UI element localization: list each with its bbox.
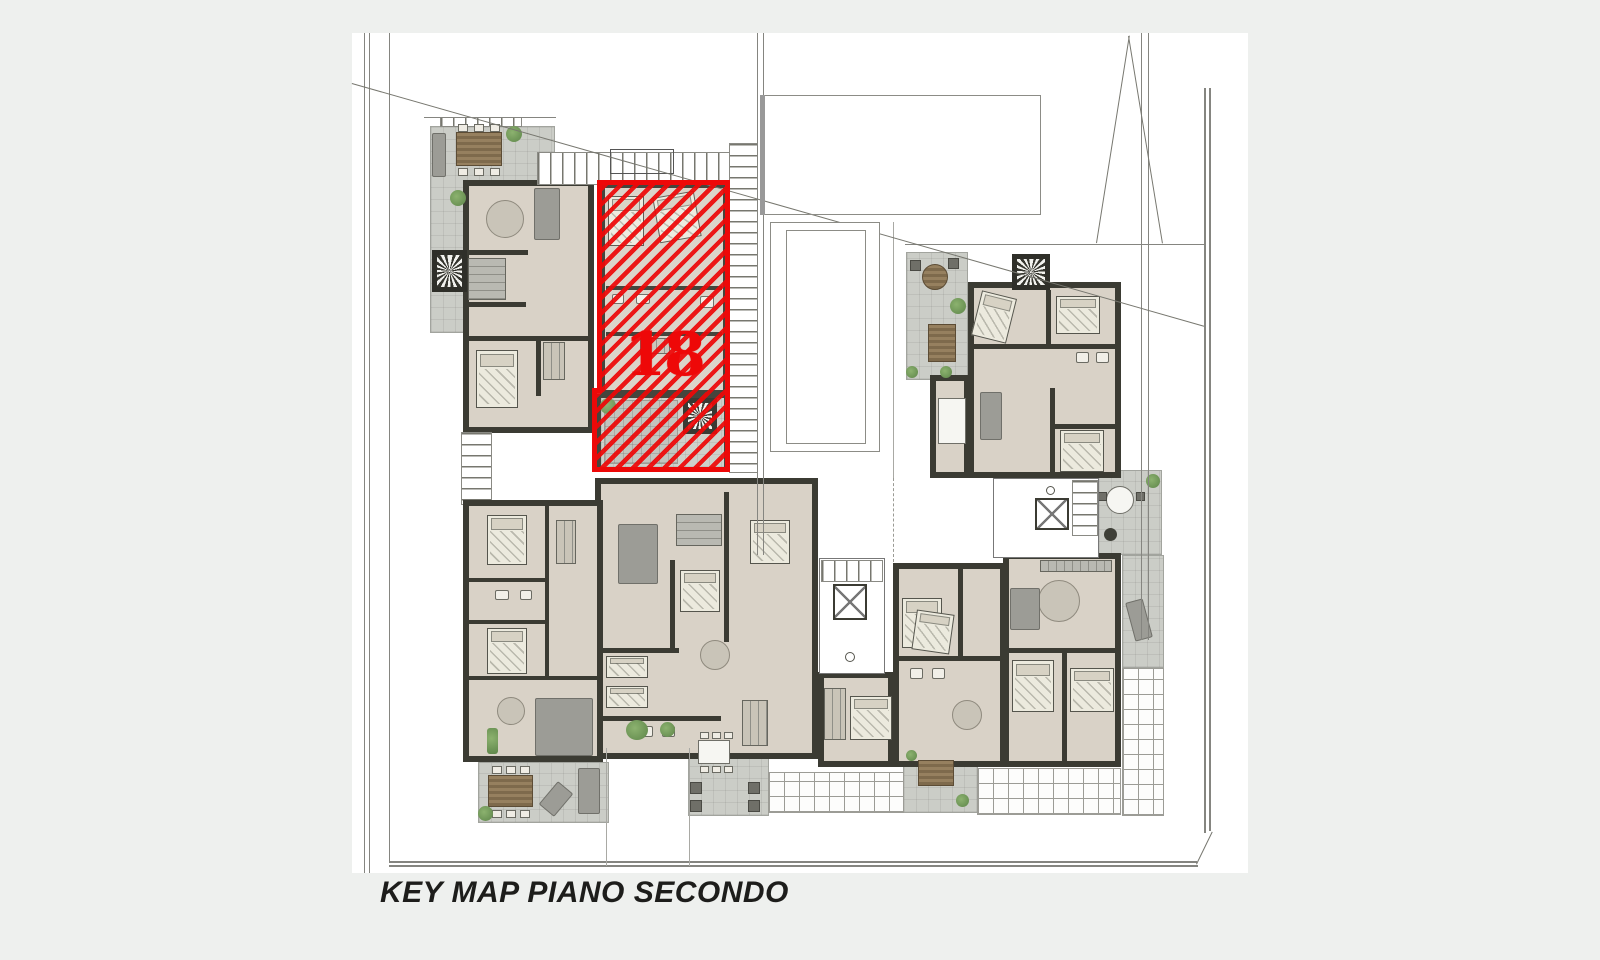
unit-18-highlight — [592, 392, 730, 472]
site-boundary-line — [1204, 88, 1206, 833]
dining-table — [918, 760, 954, 786]
gallery-landing — [610, 149, 674, 174]
chair — [910, 260, 921, 271]
plant — [956, 794, 969, 807]
interior-wall — [724, 492, 729, 642]
sofa — [980, 392, 1002, 440]
bed — [487, 628, 527, 674]
bath-fixture — [932, 668, 945, 679]
dining-table — [698, 740, 730, 764]
bath-fixture — [1096, 352, 1109, 363]
key-map-caption: KEY MAP PIANO SECONDO — [380, 876, 789, 910]
entrance-path-line — [689, 748, 690, 866]
sofa — [534, 188, 560, 240]
key-map-canvas: 18 KEY MAP PIANO SECONDO — [0, 0, 1600, 960]
interior-wall — [467, 620, 547, 624]
armchair — [748, 782, 760, 794]
interior-wall — [468, 336, 588, 341]
setback-dashed-line — [893, 478, 894, 562]
survey-marker — [845, 652, 855, 662]
bed — [476, 350, 518, 408]
closet — [543, 342, 565, 380]
spiral-stair — [432, 250, 467, 292]
site-boundary-line — [1209, 88, 1211, 831]
chair — [712, 766, 721, 773]
dining-table — [456, 132, 502, 166]
chair — [474, 168, 484, 176]
interior-wall — [899, 656, 1003, 661]
entrance-path-line — [606, 748, 607, 866]
plant — [660, 722, 675, 737]
elevator — [833, 584, 867, 620]
elevator — [1035, 498, 1069, 530]
rug — [700, 640, 730, 670]
site-line — [905, 244, 1206, 245]
site-line — [424, 117, 556, 118]
plant — [450, 190, 466, 206]
plant — [906, 366, 918, 378]
dining-table — [488, 775, 533, 807]
round-table — [922, 264, 948, 290]
site-line — [893, 222, 894, 480]
stair-ladder — [1072, 480, 1098, 536]
chair — [724, 766, 733, 773]
plant — [950, 298, 966, 314]
chair — [700, 732, 709, 739]
tile-paving — [977, 768, 1121, 815]
kitchen-island — [676, 514, 722, 546]
survey-marker — [1046, 486, 1055, 495]
chair — [490, 168, 500, 176]
tile-paving — [1122, 668, 1164, 816]
bed — [750, 520, 790, 564]
closet — [556, 520, 576, 564]
chair — [506, 810, 516, 818]
plant — [626, 720, 648, 740]
plant — [478, 806, 493, 821]
interior-wall — [545, 505, 549, 677]
round-table — [1106, 486, 1134, 514]
sofa — [1010, 588, 1040, 630]
bath-fixture — [495, 590, 509, 600]
kitchen-unit — [1040, 560, 1112, 572]
single-bed — [606, 656, 648, 678]
bed — [1012, 660, 1054, 712]
chair — [520, 766, 530, 774]
site-line — [1148, 33, 1149, 640]
bed — [1056, 296, 1100, 334]
site-boundary-line — [369, 33, 370, 873]
chair — [1098, 492, 1107, 501]
site-boundary-line — [389, 865, 1198, 867]
bed — [850, 696, 892, 740]
plant — [487, 728, 498, 754]
sofa — [432, 133, 446, 177]
interior-wall — [468, 250, 528, 255]
site-line — [757, 33, 758, 555]
site-boundary-line — [364, 33, 365, 873]
bath-fixture — [520, 590, 532, 600]
interior-wall — [601, 648, 679, 653]
building-bottom-right-west — [893, 563, 1006, 767]
planter — [1104, 528, 1117, 541]
plant — [906, 750, 917, 761]
lightwell-inner — [786, 230, 866, 444]
bed — [680, 570, 720, 612]
stair-ladder — [821, 560, 883, 582]
sofa — [618, 524, 658, 584]
rug — [486, 200, 524, 238]
dining-table — [928, 324, 956, 362]
plant — [940, 366, 952, 378]
site-boundary-line — [389, 33, 390, 861]
bed — [487, 515, 527, 565]
chair — [506, 766, 516, 774]
interior-wall — [1052, 424, 1116, 429]
bath-fixture — [1076, 352, 1089, 363]
chair — [520, 810, 530, 818]
neighbor-building-wall — [760, 95, 765, 215]
interior-wall — [1050, 388, 1055, 474]
interior-wall — [468, 302, 526, 307]
tile-paving — [768, 772, 904, 813]
lounge-sofa — [578, 768, 600, 814]
unit-number-label: 18 — [600, 312, 728, 398]
bed — [1060, 430, 1104, 472]
chair — [724, 732, 733, 739]
chair — [492, 810, 502, 818]
interior-wall — [670, 560, 675, 652]
dining-table — [938, 398, 966, 444]
chair — [458, 168, 468, 176]
interior-wall — [467, 676, 597, 680]
interior-wall — [958, 568, 963, 656]
chair — [712, 732, 721, 739]
chair — [474, 124, 484, 132]
interior-wall — [601, 716, 721, 721]
bath-fixture — [910, 668, 923, 679]
closet — [742, 700, 768, 746]
rug — [952, 700, 982, 730]
closet — [824, 688, 846, 740]
interior-wall — [972, 344, 1116, 349]
chair — [948, 258, 959, 269]
chair — [700, 766, 709, 773]
rug — [497, 697, 525, 725]
interior-wall — [1062, 652, 1067, 764]
bed — [911, 610, 954, 655]
bed — [1070, 668, 1114, 712]
site-boundary-line — [389, 861, 1197, 863]
single-bed — [606, 686, 648, 708]
neighbor-building-outline — [760, 95, 1041, 215]
sofa — [535, 698, 593, 756]
chair — [458, 124, 468, 132]
interior-wall — [1046, 290, 1051, 348]
stair-ladder — [461, 432, 492, 505]
armchair — [748, 800, 760, 812]
rug — [1038, 580, 1080, 622]
armchair — [690, 800, 702, 812]
chair — [492, 766, 502, 774]
interior-wall — [467, 578, 547, 582]
interior-wall — [536, 336, 541, 396]
kitchen-unit — [468, 258, 506, 300]
armchair — [690, 782, 702, 794]
